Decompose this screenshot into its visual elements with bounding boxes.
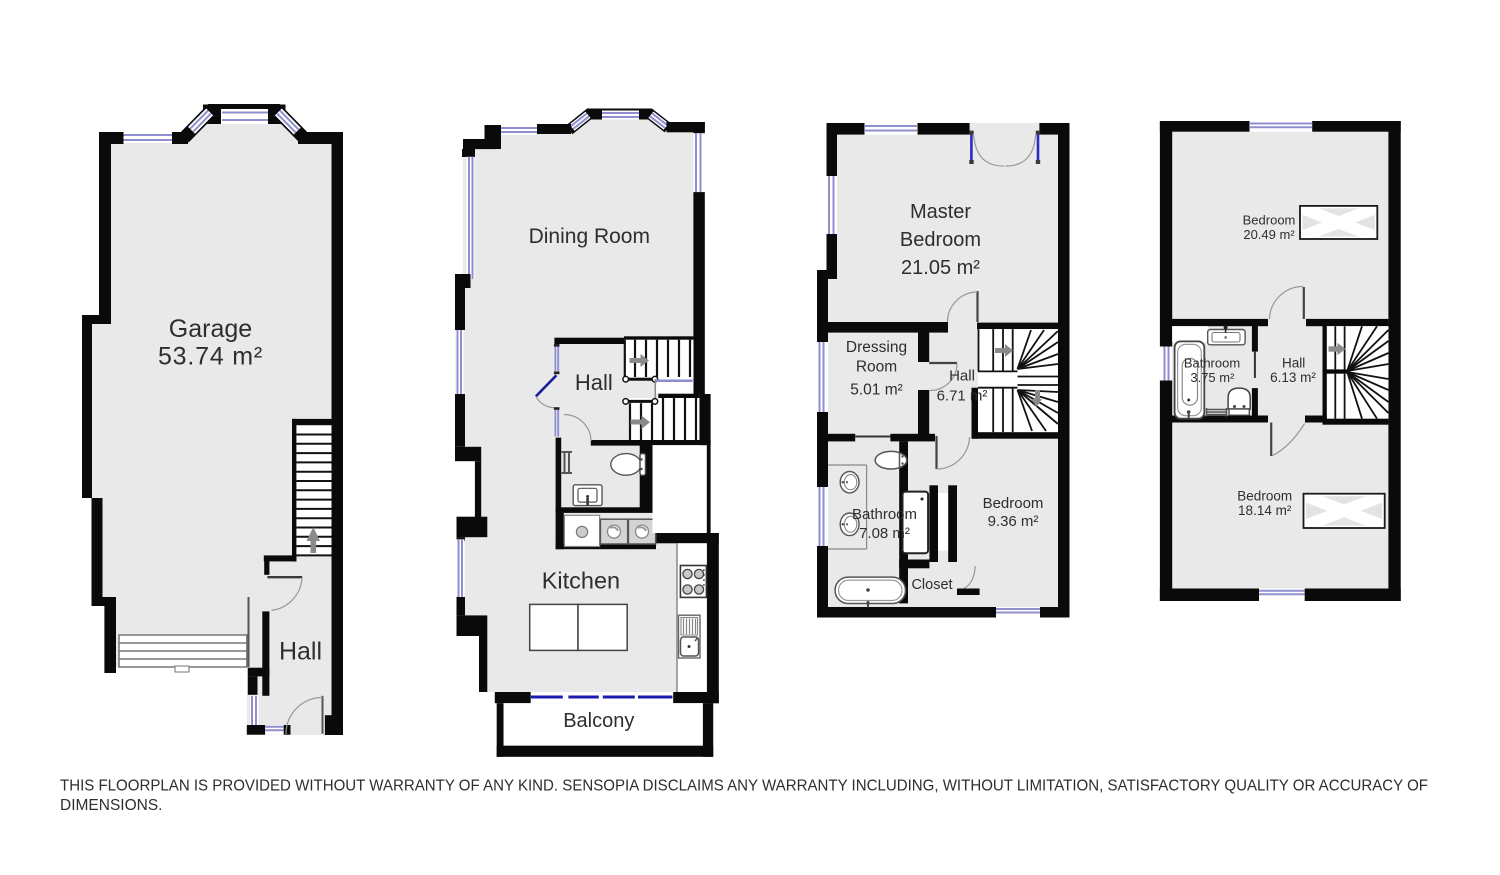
svg-text:Kitchen: Kitchen [542, 568, 620, 594]
svg-text:Hall: Hall [575, 370, 613, 395]
svg-text:Garage: Garage [169, 315, 252, 343]
svg-text:20.49 m²: 20.49 m² [1243, 227, 1295, 242]
svg-text:Bathroom: Bathroom [852, 506, 917, 523]
svg-text:6.71 m²: 6.71 m² [937, 388, 988, 405]
svg-text:53.74 m²: 53.74 m² [158, 342, 263, 370]
svg-text:Hall: Hall [279, 638, 322, 666]
svg-text:21.05 m²: 21.05 m² [901, 257, 980, 279]
svg-text:18.14 m²: 18.14 m² [1238, 503, 1292, 518]
svg-text:6.13 m²: 6.13 m² [1270, 370, 1316, 385]
svg-text:Hall: Hall [949, 368, 975, 385]
svg-text:Dining Room: Dining Room [529, 225, 650, 248]
svg-text:Hall: Hall [1282, 356, 1305, 371]
svg-text:Master: Master [910, 201, 971, 223]
svg-text:THIS FLOORPLAN IS PROVIDED WIT: THIS FLOORPLAN IS PROVIDED WITHOUT WARRA… [60, 778, 1428, 795]
svg-text:7.08 m²: 7.08 m² [859, 525, 910, 542]
svg-text:Bathroom: Bathroom [1184, 356, 1240, 371]
svg-text:Closet: Closet [911, 577, 952, 593]
svg-text:Bedroom: Bedroom [1243, 212, 1296, 227]
svg-text:Room: Room [856, 358, 897, 375]
svg-text:9.36 m²: 9.36 m² [988, 513, 1039, 530]
svg-text:Bedroom: Bedroom [1237, 489, 1292, 504]
svg-text:DIMENSIONS.: DIMENSIONS. [60, 797, 162, 814]
svg-text:Bedroom: Bedroom [983, 495, 1044, 512]
svg-text:Bedroom: Bedroom [900, 229, 981, 251]
svg-text:5.01 m²: 5.01 m² [850, 381, 903, 398]
svg-text:Balcony: Balcony [563, 710, 634, 732]
svg-text:Dressing: Dressing [846, 339, 907, 356]
svg-text:3.75 m²: 3.75 m² [1190, 370, 1235, 385]
